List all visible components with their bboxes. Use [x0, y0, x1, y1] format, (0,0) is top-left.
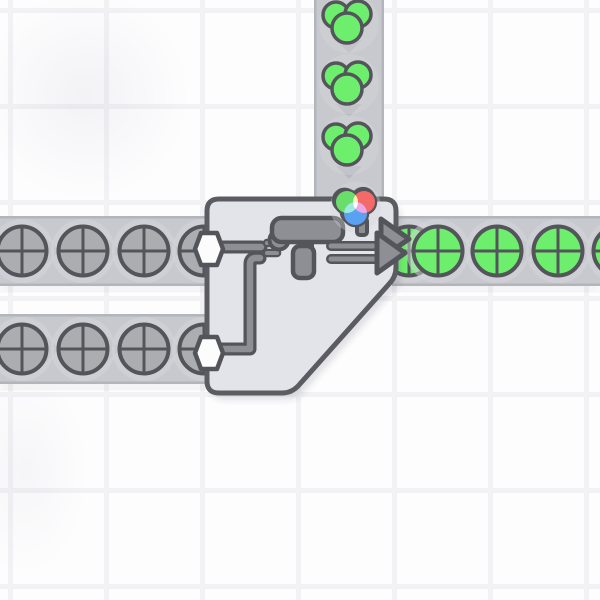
paint-drop [332, 74, 362, 104]
belt-edge [382, 0, 385, 200]
belt-shadow [392, 286, 600, 291]
belt-edge [0, 216, 208, 219]
belt-edge [0, 284, 208, 287]
shape-item-circle-uncolored [51, 317, 115, 381]
game-viewport[interactable] [0, 0, 600, 600]
belt-edge [392, 284, 600, 287]
paint-drop [332, 13, 362, 43]
paint-item-green [319, 54, 379, 114]
paint-item-green [319, 115, 379, 175]
shape-item-circle-uncolored [112, 317, 176, 381]
shape-item-circle-uncolored [112, 219, 176, 283]
shape-item-circle-green [526, 219, 590, 283]
paint-drop [332, 135, 362, 165]
shape-item-circle-green [465, 219, 529, 283]
belt-edge [0, 382, 208, 385]
belt-shadow [0, 384, 208, 389]
shape-item-circle-uncolored [51, 219, 115, 283]
belt-edge [314, 0, 317, 200]
belt-edge [392, 216, 600, 219]
input-nozzle-hexagon-icon [195, 337, 223, 369]
shape-item-circle-green [406, 219, 470, 283]
input-nozzle-hexagon-icon [195, 233, 223, 265]
painter-building[interactable] [195, 199, 409, 400]
belt-edge [0, 314, 208, 317]
belt-shadow [0, 286, 208, 291]
